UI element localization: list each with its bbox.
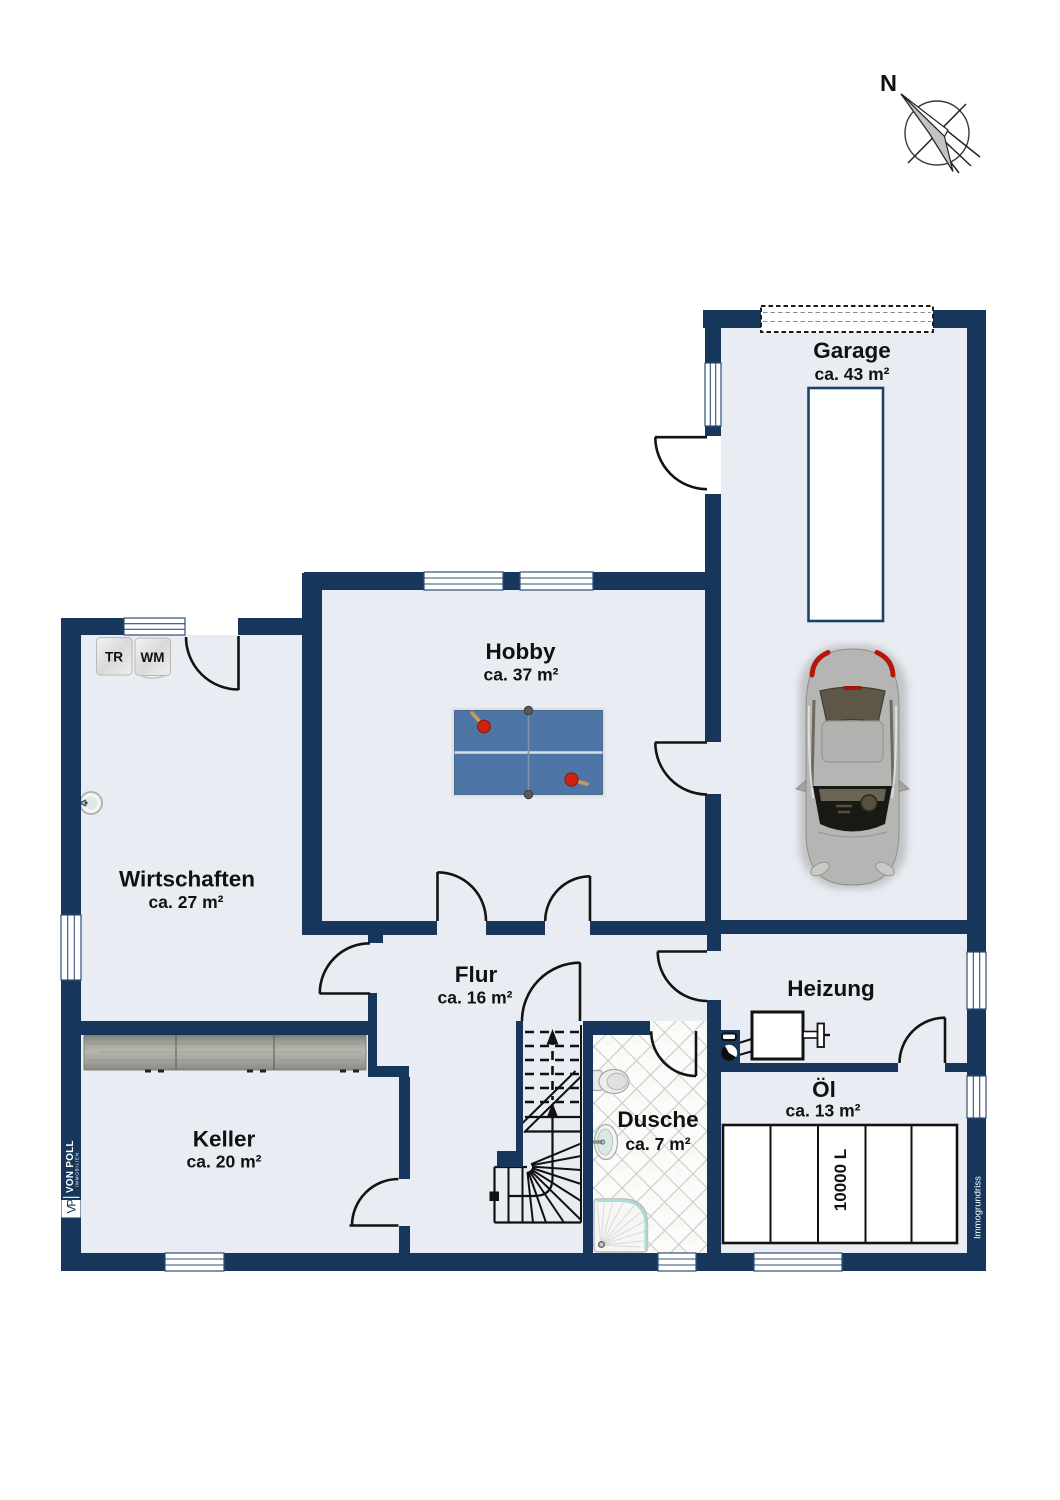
svg-text:Heizung: Heizung [787,976,875,1001]
svg-text:Garage: Garage [813,338,891,363]
svg-text:ca. 27 m²: ca. 27 m² [149,892,224,912]
svg-text:Hobby: Hobby [486,639,556,664]
svg-text:N: N [880,70,897,96]
svg-text:Flur: Flur [455,962,498,987]
svg-text:Dusche: Dusche [617,1107,698,1132]
svg-text:ca. 37 m²: ca. 37 m² [484,665,559,685]
svg-text:Öl: Öl [812,1077,836,1102]
svg-text:Wirtschaften: Wirtschaften [119,867,255,892]
svg-text:WM: WM [141,650,165,665]
svg-text:ca. 13 m²: ca. 13 m² [786,1100,861,1120]
svg-text:IMMOBILIEN: IMMOBILIEN [75,1152,80,1187]
svg-text:ca. 16 m²: ca. 16 m² [438,987,513,1007]
svg-text:Keller: Keller [193,1127,256,1152]
svg-text:ca. 43 m²: ca. 43 m² [815,364,890,384]
svg-text:ca. 7 m²: ca. 7 m² [625,1134,690,1154]
svg-text:VP: VP [65,1199,79,1214]
svg-text:Immogrundriss: Immogrundriss [973,1176,984,1239]
svg-text:TR: TR [105,650,123,665]
svg-text:ca. 20 m²: ca. 20 m² [187,1152,262,1172]
svg-text:10000 L: 10000 L [831,1149,850,1211]
